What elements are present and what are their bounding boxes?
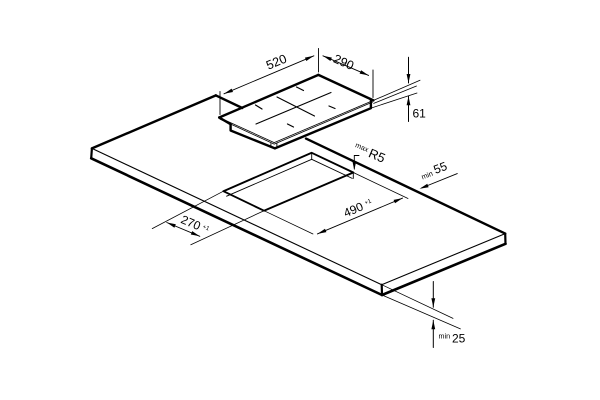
svg-text:25: 25	[452, 331, 466, 345]
svg-text:min: min	[439, 331, 451, 340]
svg-text:61: 61	[413, 107, 427, 121]
